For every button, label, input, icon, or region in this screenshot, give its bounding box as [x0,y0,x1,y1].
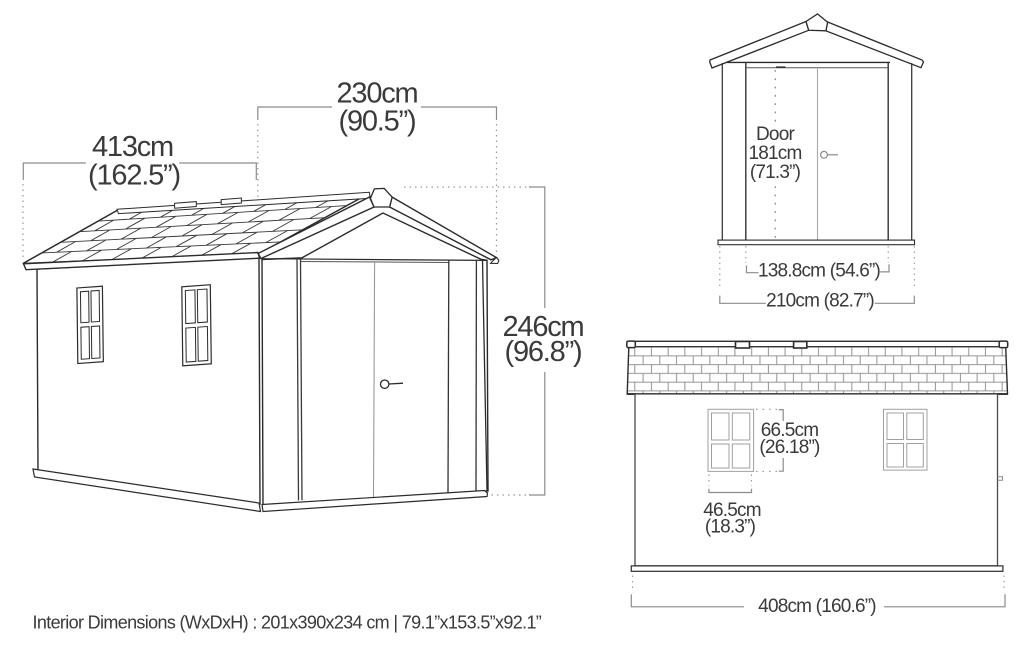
svg-text:181cm: 181cm [748,143,801,164]
svg-text:408cm (160.6”): 408cm (160.6”) [758,596,876,617]
svg-text:(96.8”): (96.8”) [504,336,581,368]
svg-text:413cm: 413cm [92,131,173,163]
svg-text:(26.18”): (26.18”) [759,437,820,458]
svg-text:(71.3”): (71.3”) [750,162,801,183]
svg-text:(18.3”): (18.3”) [705,517,756,538]
svg-text:Door: Door [756,124,795,145]
svg-text:210cm (82.7”): 210cm (82.7”) [766,291,874,312]
svg-text:(90.5”): (90.5”) [338,106,415,138]
svg-text:Interior Dimensions (WxDxH) :: Interior Dimensions (WxDxH) : 201x390x23… [33,613,542,633]
svg-text:138.8cm (54.6”): 138.8cm (54.6”) [758,261,881,282]
svg-text:(162.5”): (162.5”) [88,160,180,192]
